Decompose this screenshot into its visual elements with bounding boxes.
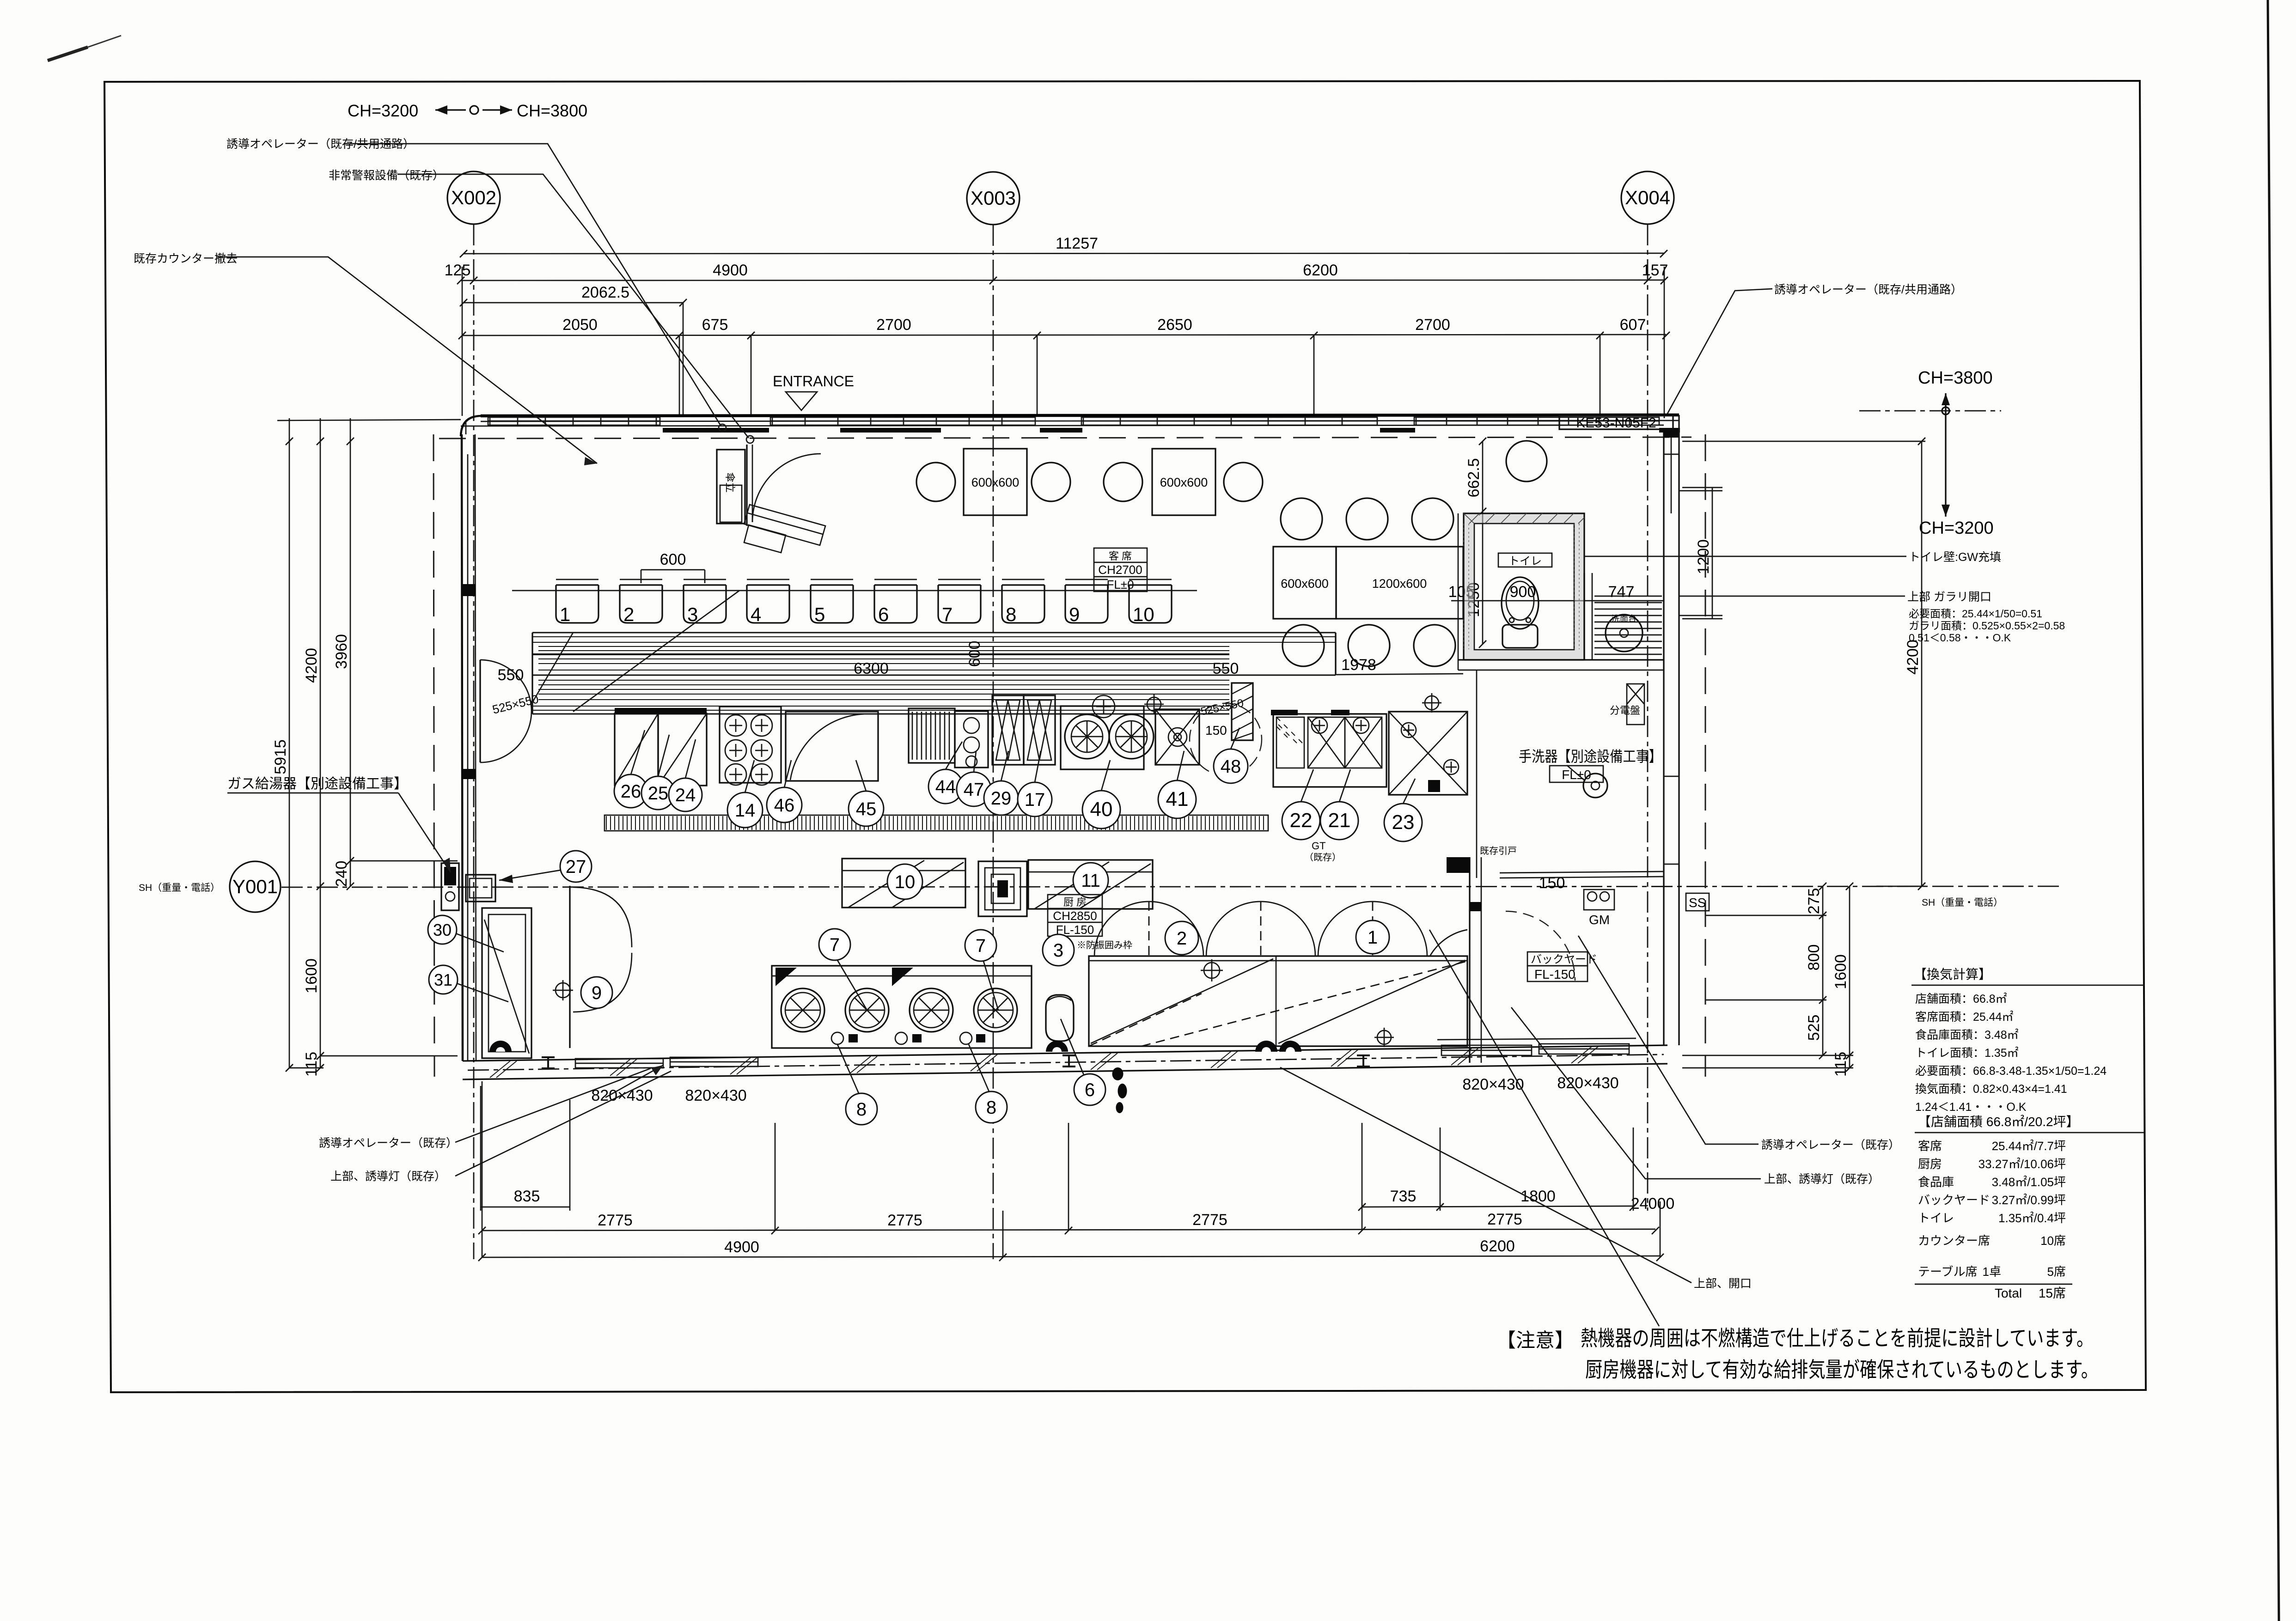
svg-text:735: 735	[1390, 1188, 1417, 1205]
svg-text:675: 675	[702, 316, 728, 334]
svg-text:45: 45	[856, 799, 877, 819]
svg-text:1卓: 1卓	[1983, 1265, 2001, 1279]
svg-text:上部、誘導灯（既存）: 上部、誘導灯（既存）	[330, 1170, 446, 1183]
svg-text:6300: 6300	[854, 660, 889, 677]
svg-text:40: 40	[1090, 798, 1113, 821]
svg-text:Total: Total	[1995, 1286, 2022, 1300]
svg-text:傘立: 傘立	[724, 472, 736, 493]
svg-text:7: 7	[830, 935, 840, 955]
svg-text:1: 1	[560, 603, 570, 625]
svg-text:食品庫面積：3.48㎡: 食品庫面積：3.48㎡	[1915, 1029, 2019, 1042]
svg-text:550: 550	[498, 666, 524, 684]
svg-text:1: 1	[1368, 927, 1378, 948]
svg-text:GT: GT	[1312, 840, 1326, 852]
svg-text:CH2700: CH2700	[1098, 563, 1142, 577]
svg-text:分電盤: 分電盤	[1610, 705, 1640, 716]
svg-text:7: 7	[942, 603, 953, 625]
svg-text:600x600: 600x600	[1281, 577, 1329, 591]
svg-text:1600: 1600	[1832, 954, 1850, 989]
svg-text:必要面積：66.8-3.48-1.35×1/50=1.24: 必要面積：66.8-3.48-1.35×1/50=1.24	[1915, 1065, 2107, 1078]
svg-text:820×430: 820×430	[1462, 1076, 1524, 1093]
svg-text:3.27㎡/0.99坪: 3.27㎡/0.99坪	[1992, 1193, 2066, 1207]
svg-text:テーブル席: テーブル席	[1918, 1265, 1977, 1279]
svg-text:【注意】: 【注意】	[1496, 1329, 1574, 1351]
svg-text:3960: 3960	[333, 634, 350, 669]
svg-text:CH=3200: CH=3200	[1919, 518, 1994, 538]
svg-text:客席面積：25.44㎡: 客席面積：25.44㎡	[1915, 1011, 2014, 1024]
svg-text:17: 17	[1025, 790, 1045, 810]
svg-text:5: 5	[814, 603, 825, 625]
svg-text:1.24＜1.41・・・O.K: 1.24＜1.41・・・O.K	[1915, 1101, 2027, 1114]
svg-text:1978: 1978	[1341, 656, 1376, 674]
svg-text:客席: 客席	[1918, 1139, 1942, 1153]
svg-text:既存引戸: 既存引戸	[1480, 846, 1517, 856]
svg-text:2700: 2700	[1415, 316, 1450, 334]
svg-text:6200: 6200	[1480, 1237, 1515, 1255]
svg-text:GM: GM	[1589, 913, 1610, 927]
svg-text:48: 48	[1221, 756, 1241, 777]
svg-text:800: 800	[1805, 945, 1823, 971]
svg-text:550: 550	[1213, 660, 1239, 677]
svg-text:必要面積：25.44×1/50=0.51: 必要面積：25.44×1/50=0.51	[1909, 608, 2042, 620]
svg-text:600: 600	[660, 551, 686, 568]
svg-text:厨房機器に対して有効な給排気量が確保されているものとします。: 厨房機器に対して有効な給排気量が確保されているものとします。	[1585, 1358, 2098, 1382]
svg-text:8: 8	[856, 1099, 867, 1120]
svg-text:6: 6	[878, 603, 889, 625]
svg-text:SH（重量・電話）: SH（重量・電話）	[139, 883, 220, 893]
svg-text:662.5: 662.5	[1465, 458, 1483, 497]
svg-text:SH（重量・電話）: SH（重量・電話）	[1922, 897, 2003, 908]
svg-text:2775: 2775	[887, 1212, 922, 1229]
svg-text:トイレ面積：1.35㎡: トイレ面積：1.35㎡	[1915, 1047, 2019, 1060]
svg-text:820×430: 820×430	[685, 1087, 746, 1104]
svg-text:2775: 2775	[1192, 1211, 1227, 1229]
svg-text:上部、開口: 上部、開口	[1694, 1277, 1752, 1290]
svg-text:食品庫: 食品庫	[1918, 1175, 1954, 1189]
svg-text:1600: 1600	[303, 958, 320, 993]
svg-text:115: 115	[303, 1052, 320, 1077]
svg-text:0.51＜0.58・・・O.K: 0.51＜0.58・・・O.K	[1909, 632, 2011, 644]
svg-text:3: 3	[1053, 940, 1063, 961]
svg-text:Y001: Y001	[232, 876, 278, 897]
svg-text:47: 47	[964, 780, 984, 800]
svg-text:30: 30	[433, 920, 452, 939]
svg-text:トイレ: トイレ	[1918, 1211, 1954, 1225]
svg-text:24: 24	[675, 785, 696, 805]
svg-text:2050: 2050	[562, 316, 598, 334]
svg-text:10席: 10席	[2040, 1234, 2066, 1248]
svg-text:41: 41	[1166, 788, 1189, 810]
svg-text:トイレ壁:GW充填: トイレ壁:GW充填	[1909, 551, 2001, 564]
svg-text:26: 26	[621, 781, 641, 802]
svg-text:4200: 4200	[303, 648, 320, 683]
svg-text:X003: X003	[971, 187, 1016, 209]
svg-text:25.44㎡/7.7坪: 25.44㎡/7.7坪	[1992, 1139, 2066, 1153]
svg-text:CH=3800: CH=3800	[517, 101, 587, 120]
svg-text:6200: 6200	[1303, 262, 1338, 279]
svg-text:客 席: 客 席	[1109, 550, 1132, 562]
svg-text:25: 25	[648, 783, 669, 804]
svg-text:10: 10	[1133, 603, 1154, 625]
svg-text:（既存）: （既存）	[1304, 852, 1341, 863]
svg-text:※防振囲み枠: ※防振囲み枠	[1077, 940, 1132, 951]
svg-text:11257: 11257	[1056, 235, 1098, 252]
svg-text:CH=3200: CH=3200	[348, 101, 418, 120]
svg-text:9: 9	[592, 983, 602, 1003]
svg-text:14: 14	[735, 800, 756, 821]
svg-text:カウンター席: カウンター席	[1918, 1234, 1990, 1248]
svg-text:150: 150	[1205, 723, 1227, 737]
svg-text:ガラリ面積：0.525×0.55×2=0.58: ガラリ面積：0.525×0.55×2=0.58	[1909, 620, 2065, 632]
svg-text:27: 27	[566, 857, 586, 877]
svg-text:ガス給湯器【別途設備工事】: ガス給湯器【別途設備工事】	[227, 776, 408, 792]
svg-text:9: 9	[1069, 603, 1080, 625]
svg-text:525: 525	[1805, 1015, 1823, 1041]
svg-text:FL±0: FL±0	[1106, 578, 1134, 591]
svg-text:非常警報設備（既存）: 非常警報設備（既存）	[329, 169, 444, 182]
svg-text:22: 22	[1290, 809, 1313, 832]
svg-text:3.48㎡/1.05坪: 3.48㎡/1.05坪	[1992, 1175, 2066, 1189]
svg-text:手洗器【別途設備工事】: 手洗器【別途設備工事】	[1519, 748, 1662, 765]
svg-text:X004: X004	[1625, 187, 1670, 208]
svg-text:240: 240	[333, 861, 350, 887]
svg-text:15席: 15席	[2039, 1286, 2066, 1300]
svg-text:CH2850: CH2850	[1053, 909, 1097, 923]
svg-text:5915: 5915	[272, 739, 289, 774]
svg-text:上部、誘導灯（既存）: 上部、誘導灯（既存）	[1764, 1173, 1880, 1186]
svg-text:11: 11	[1081, 871, 1100, 891]
svg-text:2775: 2775	[598, 1212, 633, 1229]
svg-text:上部 ガラリ開口: 上部 ガラリ開口	[1907, 591, 1991, 603]
svg-text:誘導オペレーター（既存）: 誘導オペレーター（既存）	[1761, 1139, 1900, 1152]
svg-text:2700: 2700	[876, 316, 911, 334]
svg-text:8: 8	[986, 1097, 996, 1118]
svg-text:7: 7	[976, 936, 986, 956]
svg-text:2062.5: 2062.5	[581, 284, 629, 301]
svg-text:厨房: 厨房	[1918, 1157, 1942, 1171]
svg-text:熱機器の周囲は不燃構造で仕上げることを前提に設計しています。: 熱機器の周囲は不燃構造で仕上げることを前提に設計しています。	[1581, 1326, 2094, 1350]
svg-text:600x600: 600x600	[971, 475, 1020, 489]
svg-text:バックヤード: バックヤード	[1918, 1193, 1990, 1207]
svg-text:FL-150: FL-150	[1534, 967, 1575, 981]
svg-text:2: 2	[1177, 928, 1187, 949]
svg-text:4900: 4900	[724, 1238, 759, 1256]
svg-text:10: 10	[895, 872, 916, 892]
svg-text:44: 44	[935, 777, 956, 797]
svg-text:既存カウンター撤去: 既存カウンター撤去	[134, 252, 238, 265]
svg-text:6: 6	[1085, 1080, 1095, 1100]
svg-text:600x600: 600x600	[1160, 475, 1208, 489]
svg-text:誘導オペレーター（既存）: 誘導オペレーター（既存）	[319, 1137, 458, 1150]
svg-text:21: 21	[1328, 809, 1351, 832]
svg-text:1200x600: 1200x600	[1372, 577, 1427, 591]
svg-text:X002: X002	[451, 187, 496, 208]
svg-text:SS: SS	[1689, 896, 1706, 910]
svg-text:125: 125	[445, 262, 471, 279]
svg-text:747: 747	[1608, 583, 1635, 601]
svg-text:8: 8	[1006, 603, 1016, 625]
svg-text:33.27㎡/10.06坪: 33.27㎡/10.06坪	[1978, 1157, 2066, 1171]
svg-text:KE53-N05F2: KE53-N05F2	[1576, 415, 1656, 431]
svg-text:洗面台: 洗面台	[1612, 614, 1637, 623]
svg-text:ENTRANCE: ENTRANCE	[773, 373, 854, 390]
svg-text:4200: 4200	[1904, 640, 1922, 675]
svg-text:1.35㎡/0.4坪: 1.35㎡/0.4坪	[1998, 1211, 2066, 1225]
svg-text:2775: 2775	[1487, 1211, 1522, 1228]
svg-text:31: 31	[434, 970, 452, 989]
svg-text:【店舗面積 66.8㎡/20.2坪】: 【店舗面積 66.8㎡/20.2坪】	[1918, 1115, 2079, 1129]
svg-text:46: 46	[774, 795, 795, 816]
svg-text:4: 4	[751, 603, 761, 625]
svg-text:換気面積：0.82×0.43×4=1.41: 換気面積：0.82×0.43×4=1.41	[1915, 1083, 2067, 1096]
svg-text:835: 835	[514, 1188, 540, 1205]
svg-text:275: 275	[1805, 888, 1823, 914]
svg-text:29: 29	[991, 788, 1012, 809]
svg-text:CH=3800: CH=3800	[1918, 368, 1993, 388]
svg-text:誘導オペレーター（既存/共用通路）: 誘導オペレーター（既存/共用通路）	[1774, 283, 1962, 296]
svg-text:厨 房: 厨 房	[1063, 896, 1087, 908]
svg-text:トイレ: トイレ	[1508, 555, 1542, 567]
svg-text:【換気計算】: 【換気計算】	[1914, 967, 1991, 981]
svg-text:FL±0: FL±0	[1562, 768, 1591, 782]
svg-text:4900: 4900	[713, 262, 748, 279]
svg-text:店舗面積：66.8㎡: 店舗面積：66.8㎡	[1915, 993, 2007, 1006]
svg-text:2650: 2650	[1157, 316, 1192, 334]
svg-text:607: 607	[1620, 316, 1646, 334]
svg-text:5席: 5席	[2047, 1265, 2066, 1279]
svg-text:23: 23	[1392, 811, 1415, 834]
svg-text:2: 2	[623, 603, 634, 625]
svg-text:バックヤード: バックヤード	[1531, 953, 1597, 966]
